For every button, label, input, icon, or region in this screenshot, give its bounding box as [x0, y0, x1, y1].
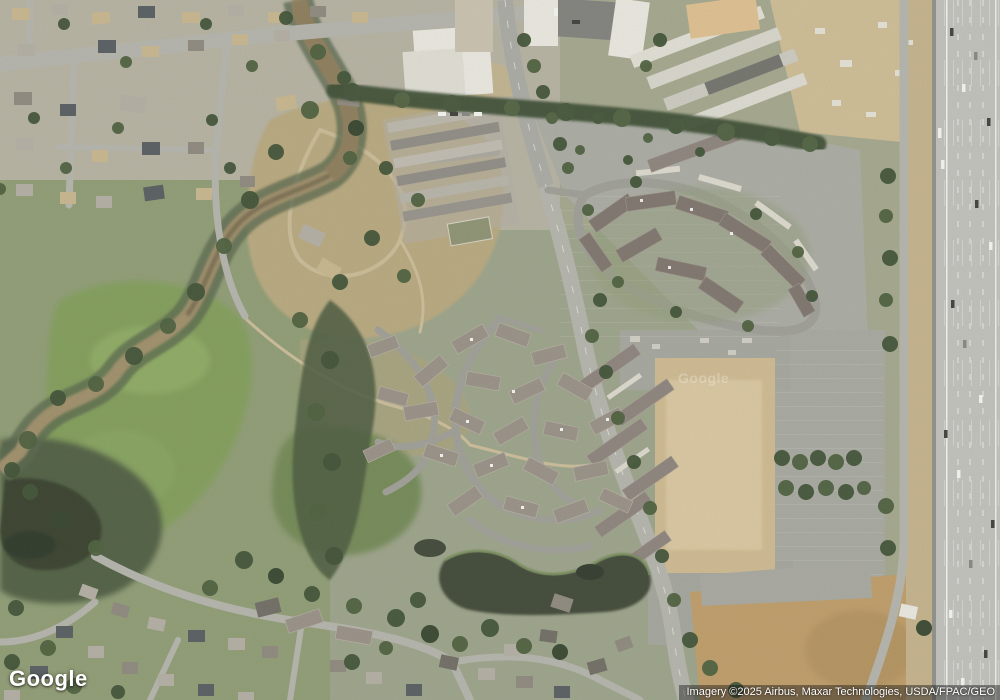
photo-grain: [0, 0, 1000, 700]
satellite-imagery: [0, 0, 1000, 700]
map-viewport[interactable]: Google Google Imagery ©2025 Airbus, Maxa…: [0, 0, 1000, 700]
imagery-attribution: Imagery ©2025 Airbus, Maxar Technologies…: [679, 685, 1000, 700]
tile-watermark: Google: [678, 370, 729, 386]
google-logo[interactable]: Google: [9, 666, 88, 692]
